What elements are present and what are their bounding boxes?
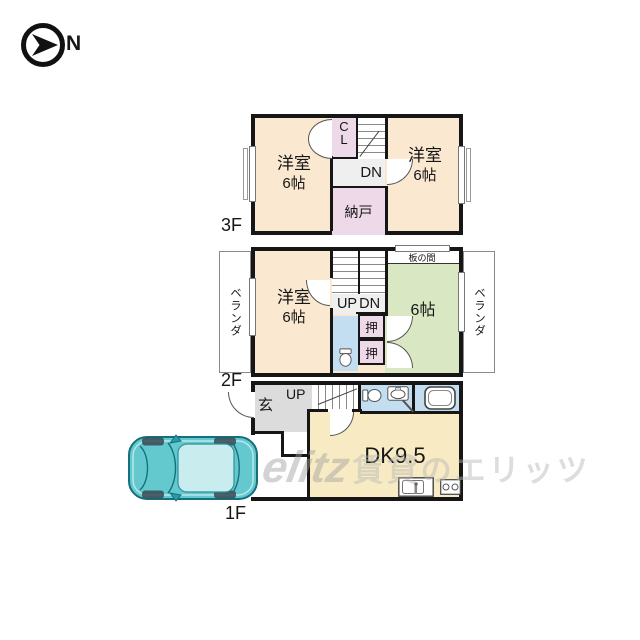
- veranda-right: ベランダ: [463, 251, 495, 373]
- entrance-label: 玄: [258, 394, 273, 415]
- wall: [307, 454, 310, 501]
- stairs-2f: [332, 251, 385, 294]
- window: [395, 245, 450, 252]
- room-size: 6帖: [413, 167, 436, 184]
- window-sill: [466, 148, 471, 202]
- wall: [307, 409, 310, 457]
- closet-oshiire-upper: 押: [358, 314, 385, 339]
- closet-3f: CL: [332, 118, 358, 159]
- wall: [251, 381, 463, 385]
- closet-oshiire-lower: 押: [358, 339, 385, 365]
- compass-north-icon: [18, 20, 68, 70]
- room-name: 洋室: [408, 146, 442, 165]
- bathtub-icon: [424, 386, 456, 410]
- wall: [385, 251, 388, 316]
- room-name: 洋室: [277, 154, 311, 173]
- wall: [358, 385, 361, 412]
- veranda-right-label: ベランダ: [471, 287, 487, 337]
- veranda-left: ベランダ: [219, 251, 251, 373]
- toilet-room-2f: [332, 316, 358, 371]
- room-size: 6帖: [282, 309, 305, 326]
- wall: [330, 156, 333, 231]
- wall: [385, 118, 388, 159]
- floor-1f-label: 1F: [225, 503, 246, 524]
- stairs-up-label: UP: [337, 296, 357, 312]
- dk-room-label: DK9.5: [340, 443, 450, 469]
- stairs-up-flight: [332, 251, 358, 294]
- wall: [330, 251, 333, 278]
- floor-2f-label: 2F: [221, 370, 242, 391]
- entrance-door-arc: [228, 392, 254, 418]
- stairs-down-label: DN: [359, 296, 380, 312]
- window: [458, 146, 465, 204]
- wall: [310, 409, 328, 412]
- room-name: 洋室: [277, 288, 311, 307]
- closet-3f-label: CL: [339, 120, 350, 146]
- wall: [281, 454, 310, 457]
- stove-icon: [440, 479, 461, 495]
- washbasin-icon: [387, 386, 409, 401]
- window: [458, 272, 465, 332]
- wall: [385, 186, 388, 235]
- stairs-up-label-1f: UP: [286, 386, 305, 402]
- floorplan-canvas: N CL DN 納戸 洋室 6帖 洋室 6帖 3F ベランダ ベランダ UP D…: [0, 0, 640, 640]
- window-sill: [243, 148, 248, 200]
- wall: [330, 308, 333, 373]
- kitchen-sink-icon: [398, 477, 434, 497]
- veranda-left-label: ベランダ: [227, 287, 243, 337]
- room-3f-right-label: 洋室 6帖: [390, 146, 460, 185]
- wall: [251, 497, 463, 501]
- wall: [356, 312, 385, 314]
- wall: [412, 385, 415, 412]
- storage-room-3f: 納戸: [332, 186, 385, 235]
- window: [249, 278, 256, 336]
- north-label: N: [66, 32, 81, 56]
- floor-3f-label: 3F: [221, 215, 242, 236]
- toilet-icon: [362, 387, 382, 404]
- stairs-down-flight: [360, 251, 386, 294]
- room-3f-left-label: 洋室 6帖: [258, 154, 330, 193]
- stairs-2f-labels: UP DN: [332, 294, 385, 314]
- wall: [360, 411, 459, 414]
- room-size: 6帖: [282, 175, 305, 192]
- toilet-icon: [338, 348, 353, 367]
- stairs-3f-down-label: DN: [332, 159, 385, 186]
- car-top-view-icon: [126, 433, 260, 503]
- window: [249, 146, 256, 202]
- wood-floor-strip: 板の間: [385, 251, 459, 264]
